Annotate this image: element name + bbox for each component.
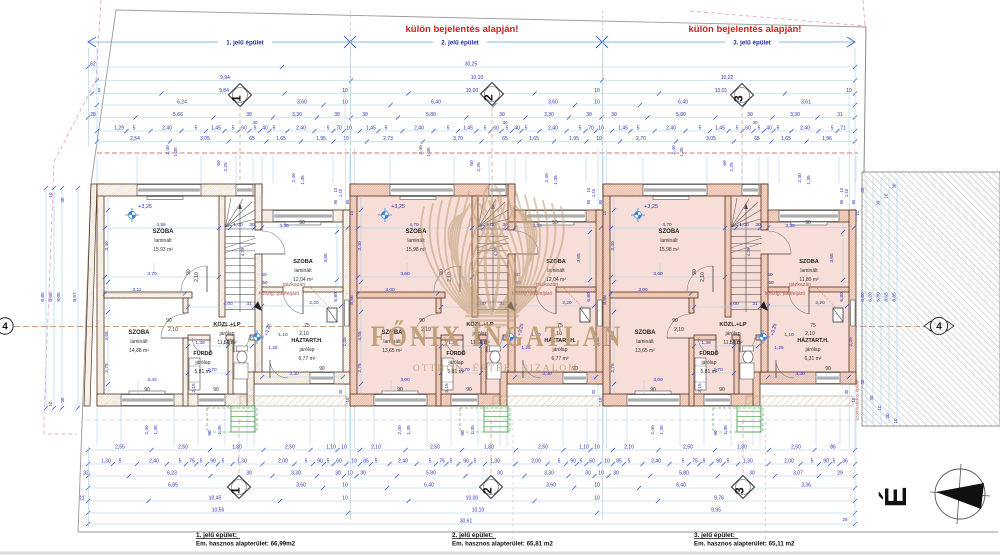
svg-text:1,65: 1,65 — [529, 136, 539, 142]
svg-text:2,10: 2,10 — [371, 444, 381, 450]
svg-text:90: 90 — [213, 387, 219, 393]
svg-text:2,50: 2,50 — [430, 444, 440, 450]
svg-text:2,15: 2,15 — [697, 383, 703, 393]
svg-text:3,00: 3,00 — [638, 287, 648, 293]
svg-text:30: 30 — [752, 120, 758, 125]
svg-text:3,70: 3,70 — [147, 271, 157, 277]
svg-text:5,80: 5,80 — [676, 112, 686, 118]
svg-text:70: 70 — [588, 125, 594, 131]
svg-text:6,77 m²: 6,77 m² — [552, 356, 569, 362]
svg-text:30,61: 30,61 — [460, 518, 473, 524]
svg-text:5: 5 — [777, 125, 780, 131]
svg-text:6,77 m²: 6,77 m² — [299, 356, 316, 362]
svg-text:90: 90 — [299, 220, 305, 226]
svg-text:60: 60 — [469, 160, 475, 166]
svg-text:10: 10 — [598, 397, 603, 402]
svg-text:5: 5 — [525, 125, 528, 131]
svg-text:4,70: 4,70 — [409, 222, 419, 228]
svg-text:11: 11 — [79, 495, 84, 501]
svg-text:5: 5 — [179, 458, 182, 464]
svg-text:60: 60 — [336, 458, 342, 464]
svg-text:10,00: 10,00 — [466, 88, 479, 94]
svg-text:30: 30 — [860, 187, 865, 192]
svg-text:2,40: 2,40 — [671, 145, 677, 155]
svg-text:30: 30 — [844, 389, 849, 394]
svg-text:31: 31 — [752, 301, 758, 307]
svg-text:3,60: 3,60 — [296, 482, 306, 488]
svg-text:90: 90 — [463, 458, 469, 464]
svg-text:65: 65 — [502, 136, 508, 142]
svg-text:30: 30 — [749, 470, 755, 476]
svg-text:1,35: 1,35 — [426, 147, 432, 157]
svg-text:1,35: 1,35 — [153, 425, 159, 435]
svg-text:járólap: járólap — [700, 360, 716, 366]
svg-text:2,40: 2,40 — [397, 425, 403, 435]
svg-text:5: 5 — [385, 125, 388, 131]
svg-text:90: 90 — [210, 458, 216, 464]
svg-text:30: 30 — [334, 112, 340, 118]
svg-text:2,40: 2,40 — [144, 425, 150, 435]
svg-text:1,80: 1,80 — [484, 444, 494, 450]
svg-text:5,80: 5,80 — [679, 470, 689, 476]
svg-text:2,45: 2,45 — [342, 337, 348, 347]
svg-text:3,60: 3,60 — [548, 99, 558, 105]
svg-text:3,30: 3,30 — [289, 371, 299, 377]
svg-text:4,55: 4,55 — [357, 331, 363, 341]
svg-text:30: 30 — [747, 112, 753, 118]
svg-text:30: 30 — [502, 120, 508, 125]
svg-text:10: 10 — [346, 125, 352, 131]
svg-text:90: 90 — [466, 387, 472, 393]
svg-text:SZOBA: SZOBA — [129, 330, 151, 336]
svg-text:10,45: 10,45 — [209, 495, 222, 501]
svg-text:8,66: 8,66 — [349, 295, 355, 305]
svg-text:4,39: 4,39 — [746, 247, 751, 256]
svg-text:3,30: 3,30 — [291, 470, 301, 476]
svg-text:2,10: 2,10 — [805, 331, 815, 337]
svg-text:10,22: 10,22 — [721, 75, 734, 81]
svg-text:1,10: 1,10 — [278, 332, 288, 338]
svg-text:2,50: 2,50 — [538, 444, 548, 450]
svg-text:3,11: 3,11 — [133, 287, 142, 293]
svg-text:5: 5 — [811, 458, 814, 464]
svg-text:10: 10 — [343, 136, 349, 142]
svg-text:5: 5 — [558, 458, 561, 464]
svg-text:5,80: 5,80 — [426, 112, 436, 118]
svg-text:5: 5 — [579, 125, 582, 131]
svg-text:5: 5 — [682, 458, 685, 464]
svg-text:65: 65 — [249, 136, 255, 142]
svg-text:laminált: laminált — [130, 339, 148, 345]
svg-text:75: 75 — [439, 458, 445, 464]
svg-text:5: 5 — [119, 458, 122, 464]
svg-text:10: 10 — [877, 405, 882, 410]
svg-text:15,98 m²: 15,98 m² — [406, 247, 426, 253]
svg-text:6,80: 6,80 — [333, 292, 339, 302]
svg-text:62: 62 — [90, 61, 96, 67]
svg-text:2,70: 2,70 — [636, 136, 646, 142]
svg-text:10: 10 — [893, 418, 898, 423]
svg-text:1,38: 1,38 — [701, 340, 711, 346]
svg-text:2,25: 2,25 — [476, 162, 482, 172]
svg-text:65: 65 — [754, 136, 760, 142]
svg-text:1,35: 1,35 — [300, 175, 306, 185]
svg-text:14,88 m²: 14,88 m² — [129, 348, 149, 354]
svg-text:FÜRDŐ: FÜRDŐ — [699, 350, 718, 357]
svg-text:járólap: járólap — [804, 347, 820, 353]
svg-text:1,29: 1,29 — [114, 125, 124, 131]
svg-text:1: 1 — [229, 487, 243, 494]
svg-text:3,65: 3,65 — [829, 253, 835, 263]
svg-text:1,10: 1,10 — [579, 444, 589, 450]
svg-text:2,40: 2,40 — [398, 458, 408, 464]
svg-text:1,35: 1,35 — [217, 425, 223, 435]
svg-text:3,00: 3,00 — [385, 287, 395, 293]
svg-text:30: 30 — [892, 183, 897, 188]
svg-text:É: É — [878, 487, 913, 508]
svg-text:3,60: 3,60 — [546, 482, 556, 488]
svg-text:1,45: 1,45 — [211, 125, 221, 131]
svg-text:95: 95 — [851, 199, 856, 204]
svg-text:5: 5 — [831, 125, 834, 131]
svg-text:90: 90 — [672, 318, 678, 324]
svg-text:1,00: 1,00 — [739, 222, 749, 228]
svg-text:+3,25: +3,25 — [138, 204, 152, 210]
svg-text:5: 5 — [833, 458, 836, 464]
svg-text:laminált: laminált — [154, 238, 172, 244]
svg-text:5: 5 — [703, 458, 706, 464]
svg-text:2,40: 2,40 — [797, 173, 803, 183]
svg-text:2,20: 2,20 — [815, 300, 825, 306]
svg-text:6,24: 6,24 — [177, 99, 187, 105]
svg-text:1,31: 1,31 — [223, 340, 233, 346]
svg-text:10: 10 — [602, 210, 607, 215]
svg-text:2,00: 2,00 — [278, 458, 288, 464]
svg-text:3,05: 3,05 — [706, 136, 716, 142]
svg-text:2,10: 2,10 — [168, 327, 178, 333]
svg-text:1,35: 1,35 — [470, 425, 476, 435]
svg-text:90: 90 — [716, 458, 722, 464]
svg-text:95: 95 — [333, 199, 338, 204]
svg-text:10: 10 — [855, 210, 860, 215]
svg-text:5: 5 — [254, 125, 257, 131]
svg-text:5: 5 — [305, 458, 308, 464]
svg-text:6,40: 6,40 — [424, 482, 434, 488]
svg-text:5: 5 — [637, 125, 640, 131]
svg-text:5: 5 — [222, 458, 225, 464]
svg-text:60: 60 — [493, 125, 499, 131]
svg-text:3,07: 3,07 — [793, 470, 803, 476]
svg-text:külön bejelentés alapján!: külön bejelentés alapján! — [689, 24, 802, 35]
svg-text:10: 10 — [342, 495, 348, 501]
svg-text:8,85: 8,85 — [40, 292, 46, 302]
svg-text:2,70: 2,70 — [207, 367, 217, 373]
svg-text:járólap: járólap — [724, 331, 740, 337]
svg-text:3,00: 3,00 — [400, 377, 410, 383]
svg-text:90: 90 — [805, 220, 811, 226]
svg-text:15,98 m²: 15,98 m² — [659, 247, 679, 253]
svg-text:10: 10 — [884, 193, 889, 198]
svg-text:30: 30 — [60, 397, 65, 402]
svg-text:KÖZL.+LP: KÖZL.+LP — [719, 321, 746, 328]
svg-text:5: 5 — [429, 458, 432, 464]
svg-text:2,50: 2,50 — [791, 444, 801, 450]
svg-text:1. jelű épület: 1. jelű épület — [226, 40, 263, 47]
svg-text:30: 30 — [586, 112, 592, 118]
svg-text:OTTHON. ÉRTÉK. BIZALOM.: OTTHON. ÉRTÉK. BIZALOM. — [413, 362, 583, 374]
svg-text:30: 30 — [362, 112, 368, 118]
svg-text:10: 10 — [48, 401, 53, 406]
svg-text:3,30: 3,30 — [544, 470, 554, 476]
svg-text:2: 2 — [481, 487, 495, 494]
svg-text:95: 95 — [839, 199, 844, 204]
svg-text:30: 30 — [499, 112, 505, 118]
svg-text:HÁZTART.H.: HÁZTART.H. — [797, 337, 829, 344]
svg-text:30: 30 — [60, 197, 65, 202]
svg-text:1,30: 1,30 — [743, 458, 753, 464]
svg-text:6,80: 6,80 — [839, 292, 845, 302]
svg-text:30,25: 30,25 — [465, 61, 478, 67]
svg-text:3,40: 3,40 — [357, 241, 363, 251]
svg-text:SZOBA: SZOBA — [406, 229, 428, 235]
svg-text:4,56: 4,56 — [156, 222, 166, 228]
svg-text:1,35: 1,35 — [173, 147, 179, 157]
svg-text:KÖZL.+LP: KÖZL.+LP — [213, 321, 240, 328]
svg-text:1,10: 1,10 — [784, 332, 794, 338]
svg-text:1,30: 1,30 — [237, 458, 247, 464]
svg-text:10: 10 — [349, 210, 354, 215]
svg-text:6,31 m²: 6,31 m² — [805, 356, 822, 362]
svg-text:50: 50 — [768, 280, 774, 286]
svg-text:8,85: 8,85 — [892, 292, 898, 302]
svg-text:1,35: 1,35 — [679, 147, 685, 157]
svg-text:10: 10 — [345, 397, 350, 402]
svg-text:1,31: 1,31 — [729, 340, 739, 346]
svg-text:30: 30 — [860, 379, 865, 384]
svg-text:2,50: 2,50 — [683, 444, 693, 450]
svg-text:60: 60 — [241, 125, 247, 131]
svg-text:4,70: 4,70 — [662, 222, 672, 228]
svg-text:9,84: 9,84 — [219, 88, 229, 94]
svg-text:3,30: 3,30 — [790, 112, 800, 118]
svg-text:2,25: 2,25 — [223, 162, 229, 172]
svg-text:4,00: 4,00 — [223, 301, 233, 307]
svg-text:hőszig. padfeljáró: hőszig. padfeljáró — [259, 291, 300, 297]
svg-text:laminált: laminált — [800, 268, 818, 274]
svg-text:8,05: 8,05 — [56, 292, 62, 302]
svg-text:90: 90 — [397, 387, 403, 393]
svg-text:90: 90 — [317, 458, 323, 464]
svg-text:5: 5 — [450, 458, 453, 464]
svg-text:2,75: 2,75 — [610, 363, 616, 373]
svg-text:2,40: 2,40 — [414, 125, 424, 131]
svg-text:3: 3 — [733, 487, 747, 494]
svg-text:31: 31 — [246, 301, 252, 307]
svg-text:laminált: laminált — [660, 238, 678, 244]
svg-text:30: 30 — [497, 470, 503, 476]
svg-text:10: 10 — [594, 99, 600, 105]
svg-text:2,40: 2,40 — [149, 458, 159, 464]
svg-text:5: 5 — [727, 458, 730, 464]
svg-text:9,95: 9,95 — [711, 507, 721, 513]
svg-text:+3,25: +3,25 — [391, 204, 405, 210]
svg-text:10: 10 — [594, 482, 600, 488]
svg-text:5: 5 — [736, 125, 739, 131]
svg-text:2,40: 2,40 — [650, 425, 656, 435]
svg-text:60: 60 — [216, 160, 222, 166]
svg-text:3,30: 3,30 — [795, 371, 805, 377]
svg-text:2,40: 2,40 — [666, 125, 676, 131]
svg-text:járólap: járólap — [298, 347, 314, 353]
svg-text:járólap: járólap — [218, 331, 234, 337]
svg-text:90: 90 — [460, 430, 466, 436]
svg-text:1,45: 1,45 — [463, 125, 473, 131]
svg-text:10: 10 — [596, 136, 602, 142]
svg-text:30: 30 — [613, 470, 619, 476]
svg-text:2,40: 2,40 — [418, 145, 424, 155]
svg-text:1,30: 1,30 — [490, 458, 500, 464]
svg-text:90: 90 — [166, 318, 172, 324]
svg-text:2,55: 2,55 — [115, 444, 125, 450]
svg-text:90: 90 — [869, 395, 874, 400]
svg-text:3. jelű épület:: 3. jelű épület: — [694, 532, 735, 539]
svg-text:1,25: 1,25 — [268, 345, 278, 351]
svg-text:10: 10 — [604, 458, 610, 464]
svg-text:6,40: 6,40 — [431, 99, 441, 105]
svg-text:6,80: 6,80 — [876, 292, 882, 302]
svg-text:30: 30 — [252, 120, 258, 125]
svg-text:90: 90 — [186, 269, 192, 275]
svg-text:5,80: 5,80 — [426, 470, 436, 476]
svg-text:10: 10 — [341, 444, 347, 450]
svg-text:10: 10 — [598, 125, 604, 131]
svg-text:2,25: 2,25 — [729, 162, 735, 172]
svg-text:2,10: 2,10 — [194, 272, 200, 282]
svg-text:2,50: 2,50 — [285, 444, 295, 450]
svg-text:60: 60 — [745, 125, 751, 131]
svg-text:5: 5 — [133, 125, 136, 131]
svg-text:2,10: 2,10 — [700, 272, 706, 282]
svg-text:6,23: 6,23 — [167, 470, 177, 476]
svg-text:4,55: 4,55 — [104, 331, 110, 341]
svg-text:6,20: 6,20 — [868, 292, 874, 302]
svg-text:1,95: 1,95 — [569, 136, 579, 142]
svg-text:71: 71 — [840, 125, 846, 131]
svg-text:járólap: járólap — [194, 360, 210, 366]
svg-text:90: 90 — [713, 430, 719, 436]
svg-text:10: 10 — [347, 470, 353, 476]
svg-text:2,00: 2,00 — [531, 458, 541, 464]
svg-text:Em. hasznos alapterület: 65,11: Em. hasznos alapterület: 65,11 m2 — [694, 541, 795, 548]
svg-text:36: 36 — [842, 458, 848, 464]
svg-text:2,75: 2,75 — [104, 363, 110, 373]
svg-text:2,40: 2,40 — [651, 458, 661, 464]
svg-text:HÁZTART.H.: HÁZTART.H. — [291, 337, 323, 344]
svg-text:+3,25: +3,25 — [644, 204, 658, 210]
svg-text:10: 10 — [594, 444, 600, 450]
svg-text:5,66: 5,66 — [173, 112, 183, 118]
svg-text:Em. hasznos alapterület: 66,99: Em. hasznos alapterület: 66,99m2 — [196, 541, 296, 548]
svg-text:75: 75 — [189, 458, 195, 464]
svg-text:gázkazán: gázkazán — [789, 282, 811, 288]
svg-text:1,80: 1,80 — [232, 444, 242, 450]
svg-text:2,50: 2,50 — [178, 444, 188, 450]
svg-text:3,43: 3,43 — [147, 377, 157, 383]
svg-text:3,61: 3,61 — [801, 99, 811, 105]
svg-text:50: 50 — [262, 280, 268, 286]
svg-text:85: 85 — [363, 458, 369, 464]
svg-text:90: 90 — [692, 269, 698, 275]
svg-text:40: 40 — [262, 125, 268, 131]
svg-text:10,10: 10,10 — [472, 507, 485, 513]
svg-text:2,15: 2,15 — [191, 383, 197, 393]
svg-text:6,80: 6,80 — [860, 292, 866, 302]
svg-text:2,40: 2,40 — [800, 125, 810, 131]
svg-text:1,65: 1,65 — [781, 136, 791, 142]
svg-text:8,65: 8,65 — [48, 292, 54, 302]
svg-text:90: 90 — [823, 458, 829, 464]
svg-text:2,75: 2,75 — [357, 363, 363, 373]
svg-text:SZOBA: SZOBA — [153, 229, 175, 235]
svg-text:2,40: 2,40 — [548, 125, 558, 131]
svg-text:1,95: 1,95 — [316, 136, 326, 142]
svg-text:90: 90 — [719, 387, 725, 393]
svg-text:50: 50 — [767, 272, 773, 278]
svg-text:2,10: 2,10 — [299, 331, 309, 337]
svg-text:FŐNIX INGATLAN: FŐNIX INGATLAN — [371, 319, 624, 353]
svg-text:10,56: 10,56 — [212, 507, 225, 513]
svg-text:9,94: 9,94 — [220, 75, 230, 81]
svg-text:3,30: 3,30 — [785, 223, 795, 229]
svg-text:95: 95 — [586, 199, 591, 204]
svg-text:60: 60 — [722, 160, 728, 166]
svg-text:2,40: 2,40 — [165, 145, 171, 155]
svg-text:10: 10 — [342, 482, 348, 488]
svg-text:5: 5 — [375, 458, 378, 464]
svg-text:3,30: 3,30 — [279, 223, 289, 229]
svg-text:2,00: 2,00 — [784, 458, 794, 464]
svg-text:10: 10 — [48, 192, 53, 197]
svg-text:15,93 m²: 15,93 m² — [153, 247, 173, 253]
svg-text:30: 30 — [360, 470, 366, 476]
svg-text:90: 90 — [650, 387, 656, 393]
svg-text:3,65: 3,65 — [323, 253, 329, 263]
svg-text:FÜRDŐ: FÜRDŐ — [193, 350, 212, 357]
svg-text:2,54: 2,54 — [130, 136, 140, 142]
svg-text:1,00: 1,00 — [233, 222, 243, 228]
svg-text:4,00: 4,00 — [729, 301, 739, 307]
svg-text:86: 86 — [830, 444, 836, 450]
svg-text:1,45: 1,45 — [715, 125, 725, 131]
svg-text:5: 5 — [758, 125, 761, 131]
svg-text:30: 30 — [755, 222, 761, 228]
svg-text:3,36: 3,36 — [801, 482, 811, 488]
svg-text:90: 90 — [570, 458, 576, 464]
svg-text:2,70: 2,70 — [713, 367, 723, 373]
svg-text:külön bejelentés alapján!: külön bejelentés alapján! — [406, 24, 519, 35]
svg-text:laminált: laminált — [636, 339, 654, 345]
svg-text:3,65: 3,65 — [576, 253, 582, 263]
svg-text:5: 5 — [628, 458, 631, 464]
svg-text:2,73: 2,73 — [383, 136, 393, 142]
svg-text:1,45: 1,45 — [366, 125, 376, 131]
svg-text:90: 90 — [825, 366, 831, 372]
svg-text:30: 30 — [338, 389, 343, 394]
svg-text:8,67: 8,67 — [72, 292, 78, 302]
svg-text:10,01: 10,01 — [715, 88, 728, 94]
svg-text:3,40: 3,40 — [610, 241, 616, 251]
svg-text:2,10: 2,10 — [624, 444, 634, 450]
